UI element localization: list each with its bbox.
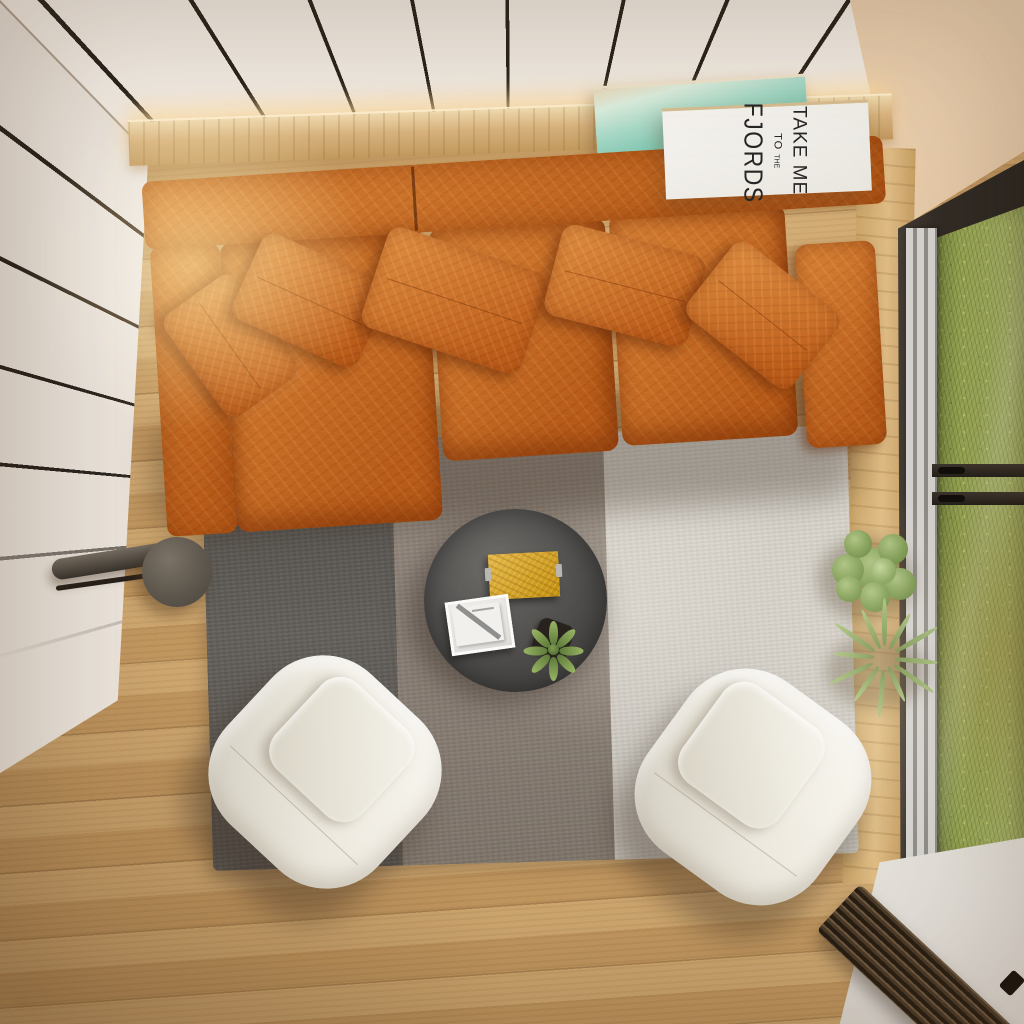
plant-leaf (877, 670, 886, 718)
catalog-title-line (472, 607, 494, 612)
grass-plant (830, 604, 940, 714)
lamp-base (142, 537, 212, 607)
book-clasp (485, 568, 492, 581)
marble-coffee-table (424, 509, 607, 692)
succulent-plant (529, 615, 577, 663)
succulent-leaf (524, 647, 548, 656)
succulent-leaf (560, 647, 584, 656)
yellow-book (488, 551, 560, 600)
poster-line-1: TAKE ME (790, 103, 809, 199)
fjords-poster-text: TAKE ME TO THE FJORDS (742, 103, 809, 199)
living-room-render: TAKE ME TO THE FJORDS (0, 0, 1024, 1024)
catalog-stripe (465, 610, 502, 639)
window-glare (934, 206, 1024, 862)
succulent-core (548, 644, 559, 655)
window-handle (938, 495, 965, 502)
catalog-book (451, 602, 504, 646)
poster-line-2: TO THE (772, 103, 783, 199)
bush-foliage (844, 530, 872, 558)
plant-leaf (882, 598, 887, 646)
white-tray (445, 594, 516, 656)
plant-leaf (833, 651, 874, 660)
fjords-poster: TAKE ME TO THE FJORDS (662, 100, 872, 200)
poster-line-3: FJORDS (740, 103, 766, 199)
succulent-leaf (549, 657, 558, 681)
window-handle (938, 467, 965, 474)
book-clasp (556, 564, 563, 577)
bush-foliage (870, 558, 896, 584)
bush-foliage (836, 576, 862, 602)
plant-leaf (895, 656, 938, 665)
